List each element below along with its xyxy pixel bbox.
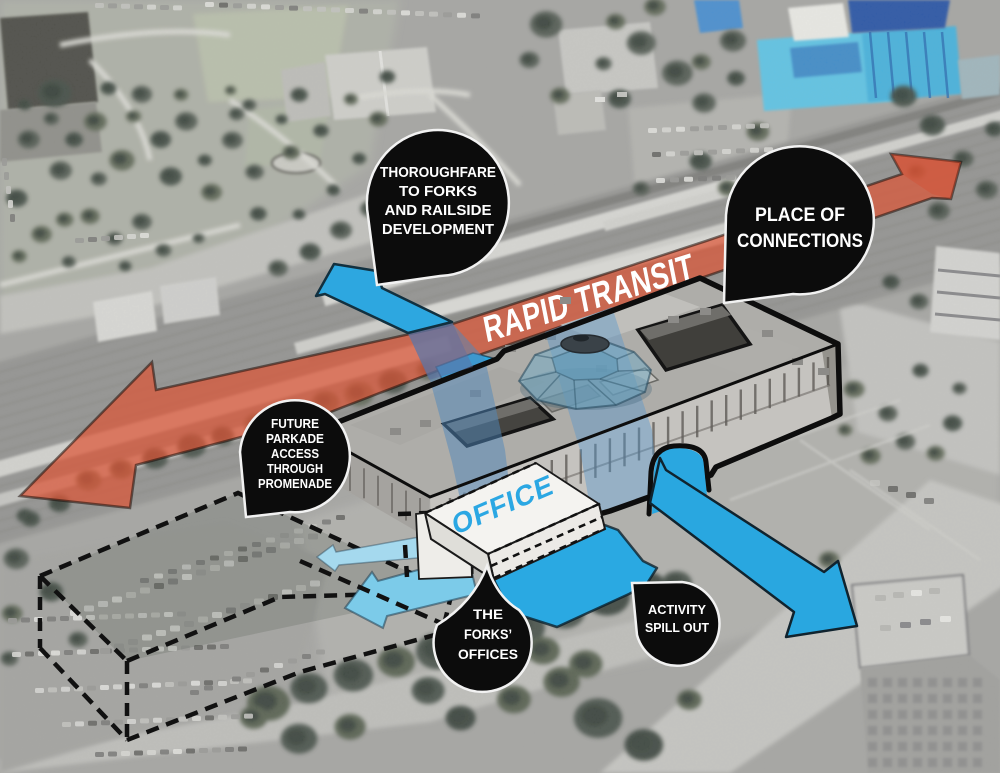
svg-text:PARKADE: PARKADE [266,432,324,446]
svg-text:THOROUGHFARE: THOROUGHFARE [380,165,496,181]
svg-text:OFFICES: OFFICES [458,647,518,662]
svg-text:PROMENADE: PROMENADE [258,477,332,491]
svg-text:TO FORKS: TO FORKS [399,184,477,200]
svg-text:THROUGH: THROUGH [267,462,323,476]
svg-text:DEVELOPMENT: DEVELOPMENT [382,222,494,238]
svg-text:ACTIVITY: ACTIVITY [648,603,707,617]
svg-text:CONNECTIONS: CONNECTIONS [737,231,863,252]
svg-text:FORKS’: FORKS’ [464,627,512,642]
svg-text:AND RAILSIDE: AND RAILSIDE [385,203,492,219]
svg-text:THE: THE [473,607,503,622]
svg-text:PLACE OF: PLACE OF [755,205,845,226]
svg-text:SPILL OUT: SPILL OUT [645,621,709,635]
svg-text:FUTURE: FUTURE [271,417,319,431]
svg-text:ACCESS: ACCESS [271,447,319,461]
